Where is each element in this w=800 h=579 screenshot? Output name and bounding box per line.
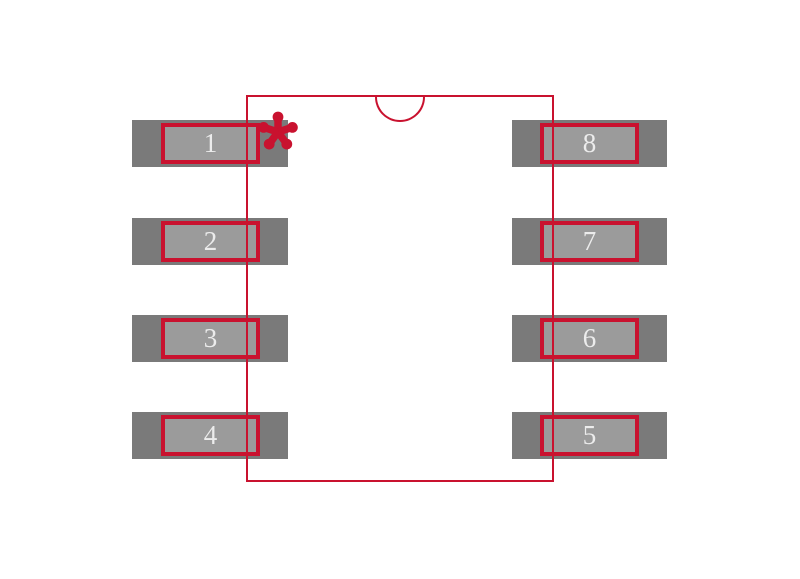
pin-number: 6 [583,325,597,352]
pin-number: 7 [583,228,597,255]
pin-number: 5 [583,422,597,449]
pad-pin-6: 6 [512,315,667,362]
pin-number: 2 [204,228,218,255]
pin-8-outline: 8 [540,123,639,164]
pad-pin-2: 2 [132,218,288,265]
pad-pin-5: 5 [512,412,667,459]
package-body-outline [246,95,554,482]
pin-3-outline: 3 [161,318,260,359]
pin-number: 3 [204,325,218,352]
pad-pin-3: 3 [132,315,288,362]
pin-number: 1 [204,130,218,157]
pin-4-outline: 4 [161,415,260,456]
pad-pin-4: 4 [132,412,288,459]
pin-number: 4 [204,422,218,449]
pad-pin-1: 1 [132,120,288,167]
pin-1-outline: 1 [161,123,260,164]
footprint-preview: 1 2 3 4 8 7 6 5 [0,0,800,579]
pad-pin-8: 8 [512,120,667,167]
pin-number: 8 [583,130,597,157]
pin-7-outline: 7 [540,221,639,262]
pin-6-outline: 6 [540,318,639,359]
orientation-notch-icon [375,97,425,122]
pin-2-outline: 2 [161,221,260,262]
pin-5-outline: 5 [540,415,639,456]
pad-pin-7: 7 [512,218,667,265]
